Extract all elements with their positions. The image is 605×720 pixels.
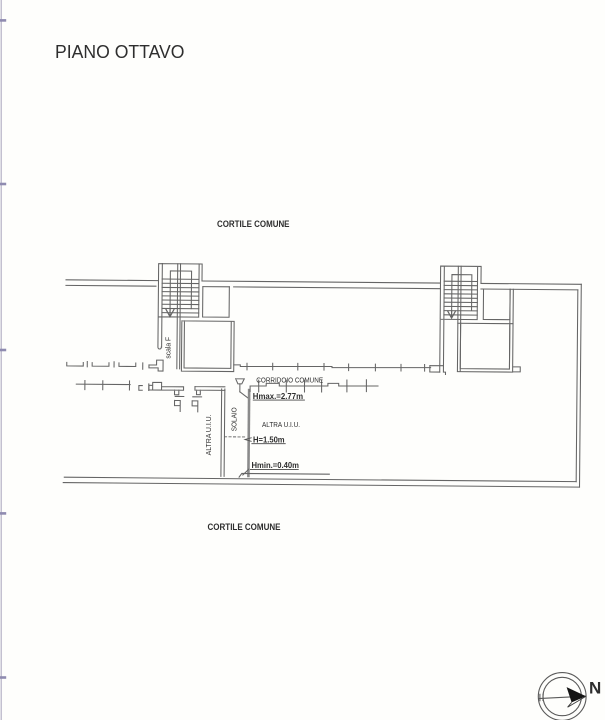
svg-text:CORRIDOIO COMUNE: CORRIDOIO COMUNE: [256, 375, 323, 384]
svg-text:SOLAIO: SOLAIO: [230, 407, 239, 431]
svg-text:ALTRA U.I.U.: ALTRA U.I.U.: [262, 420, 300, 429]
svg-text:ALTRA U.I.U.: ALTRA U.I.U.: [204, 414, 213, 455]
svg-text:CORTILE COMUNE: CORTILE COMUNE: [208, 521, 281, 532]
svg-text:N: N: [589, 679, 601, 698]
svg-text:Hmin.=0.40m: Hmin.=0.40m: [252, 461, 300, 470]
svg-text:CORTILE COMUNE: CORTILE COMUNE: [217, 218, 290, 229]
svg-text:H=1.50m: H=1.50m: [253, 436, 285, 445]
svg-text:Hmax.=2.77m: Hmax.=2.77m: [253, 392, 303, 401]
svg-text:scala F: scala F: [164, 336, 172, 358]
svg-text:PIANO OTTAVO: PIANO OTTAVO: [55, 41, 185, 62]
